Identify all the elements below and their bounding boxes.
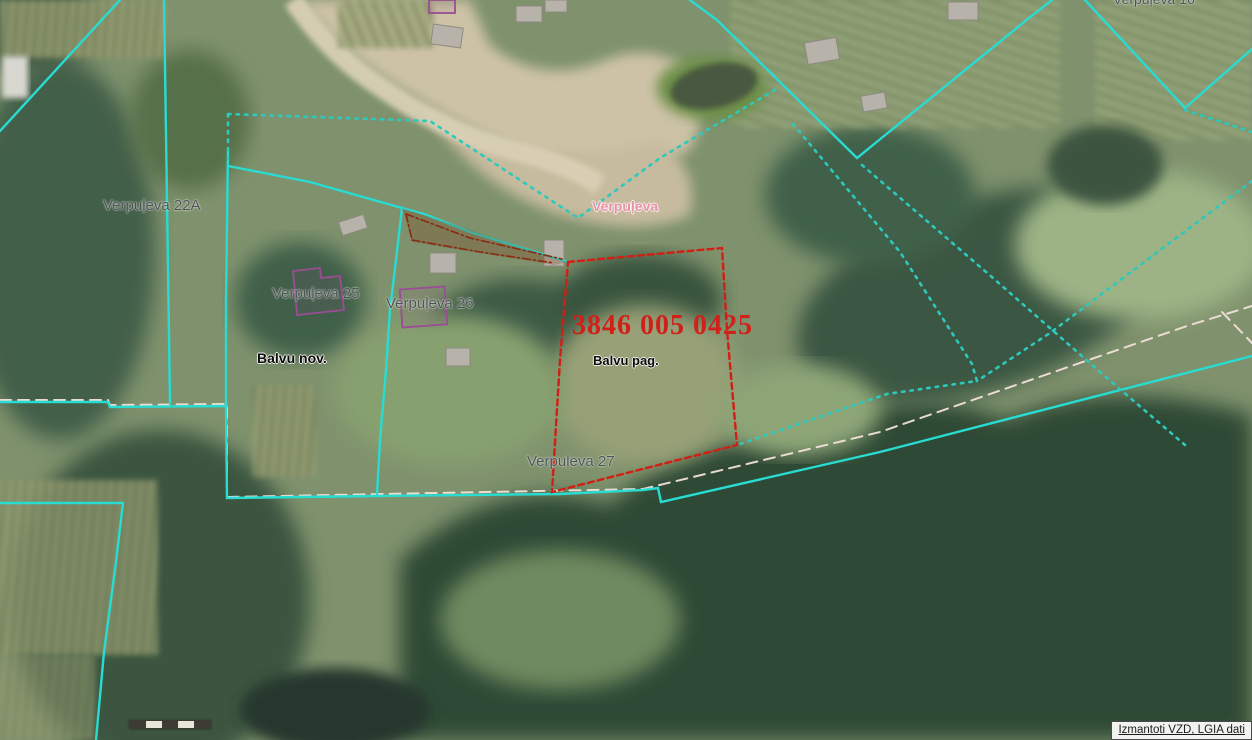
scale-bar: [129, 720, 211, 729]
satellite-imagery: [0, 0, 1252, 740]
terrain-background: [0, 0, 1252, 740]
attribution-link[interactable]: Izmantoti VZD, LGIA dati: [1118, 724, 1245, 736]
attribution-box: Izmantoti VZD, LGIA dati: [1111, 721, 1252, 740]
map-canvas[interactable]: Verpuļeva 22A Verpuļeva 25 Verpuļeva 26 …: [0, 0, 1252, 740]
